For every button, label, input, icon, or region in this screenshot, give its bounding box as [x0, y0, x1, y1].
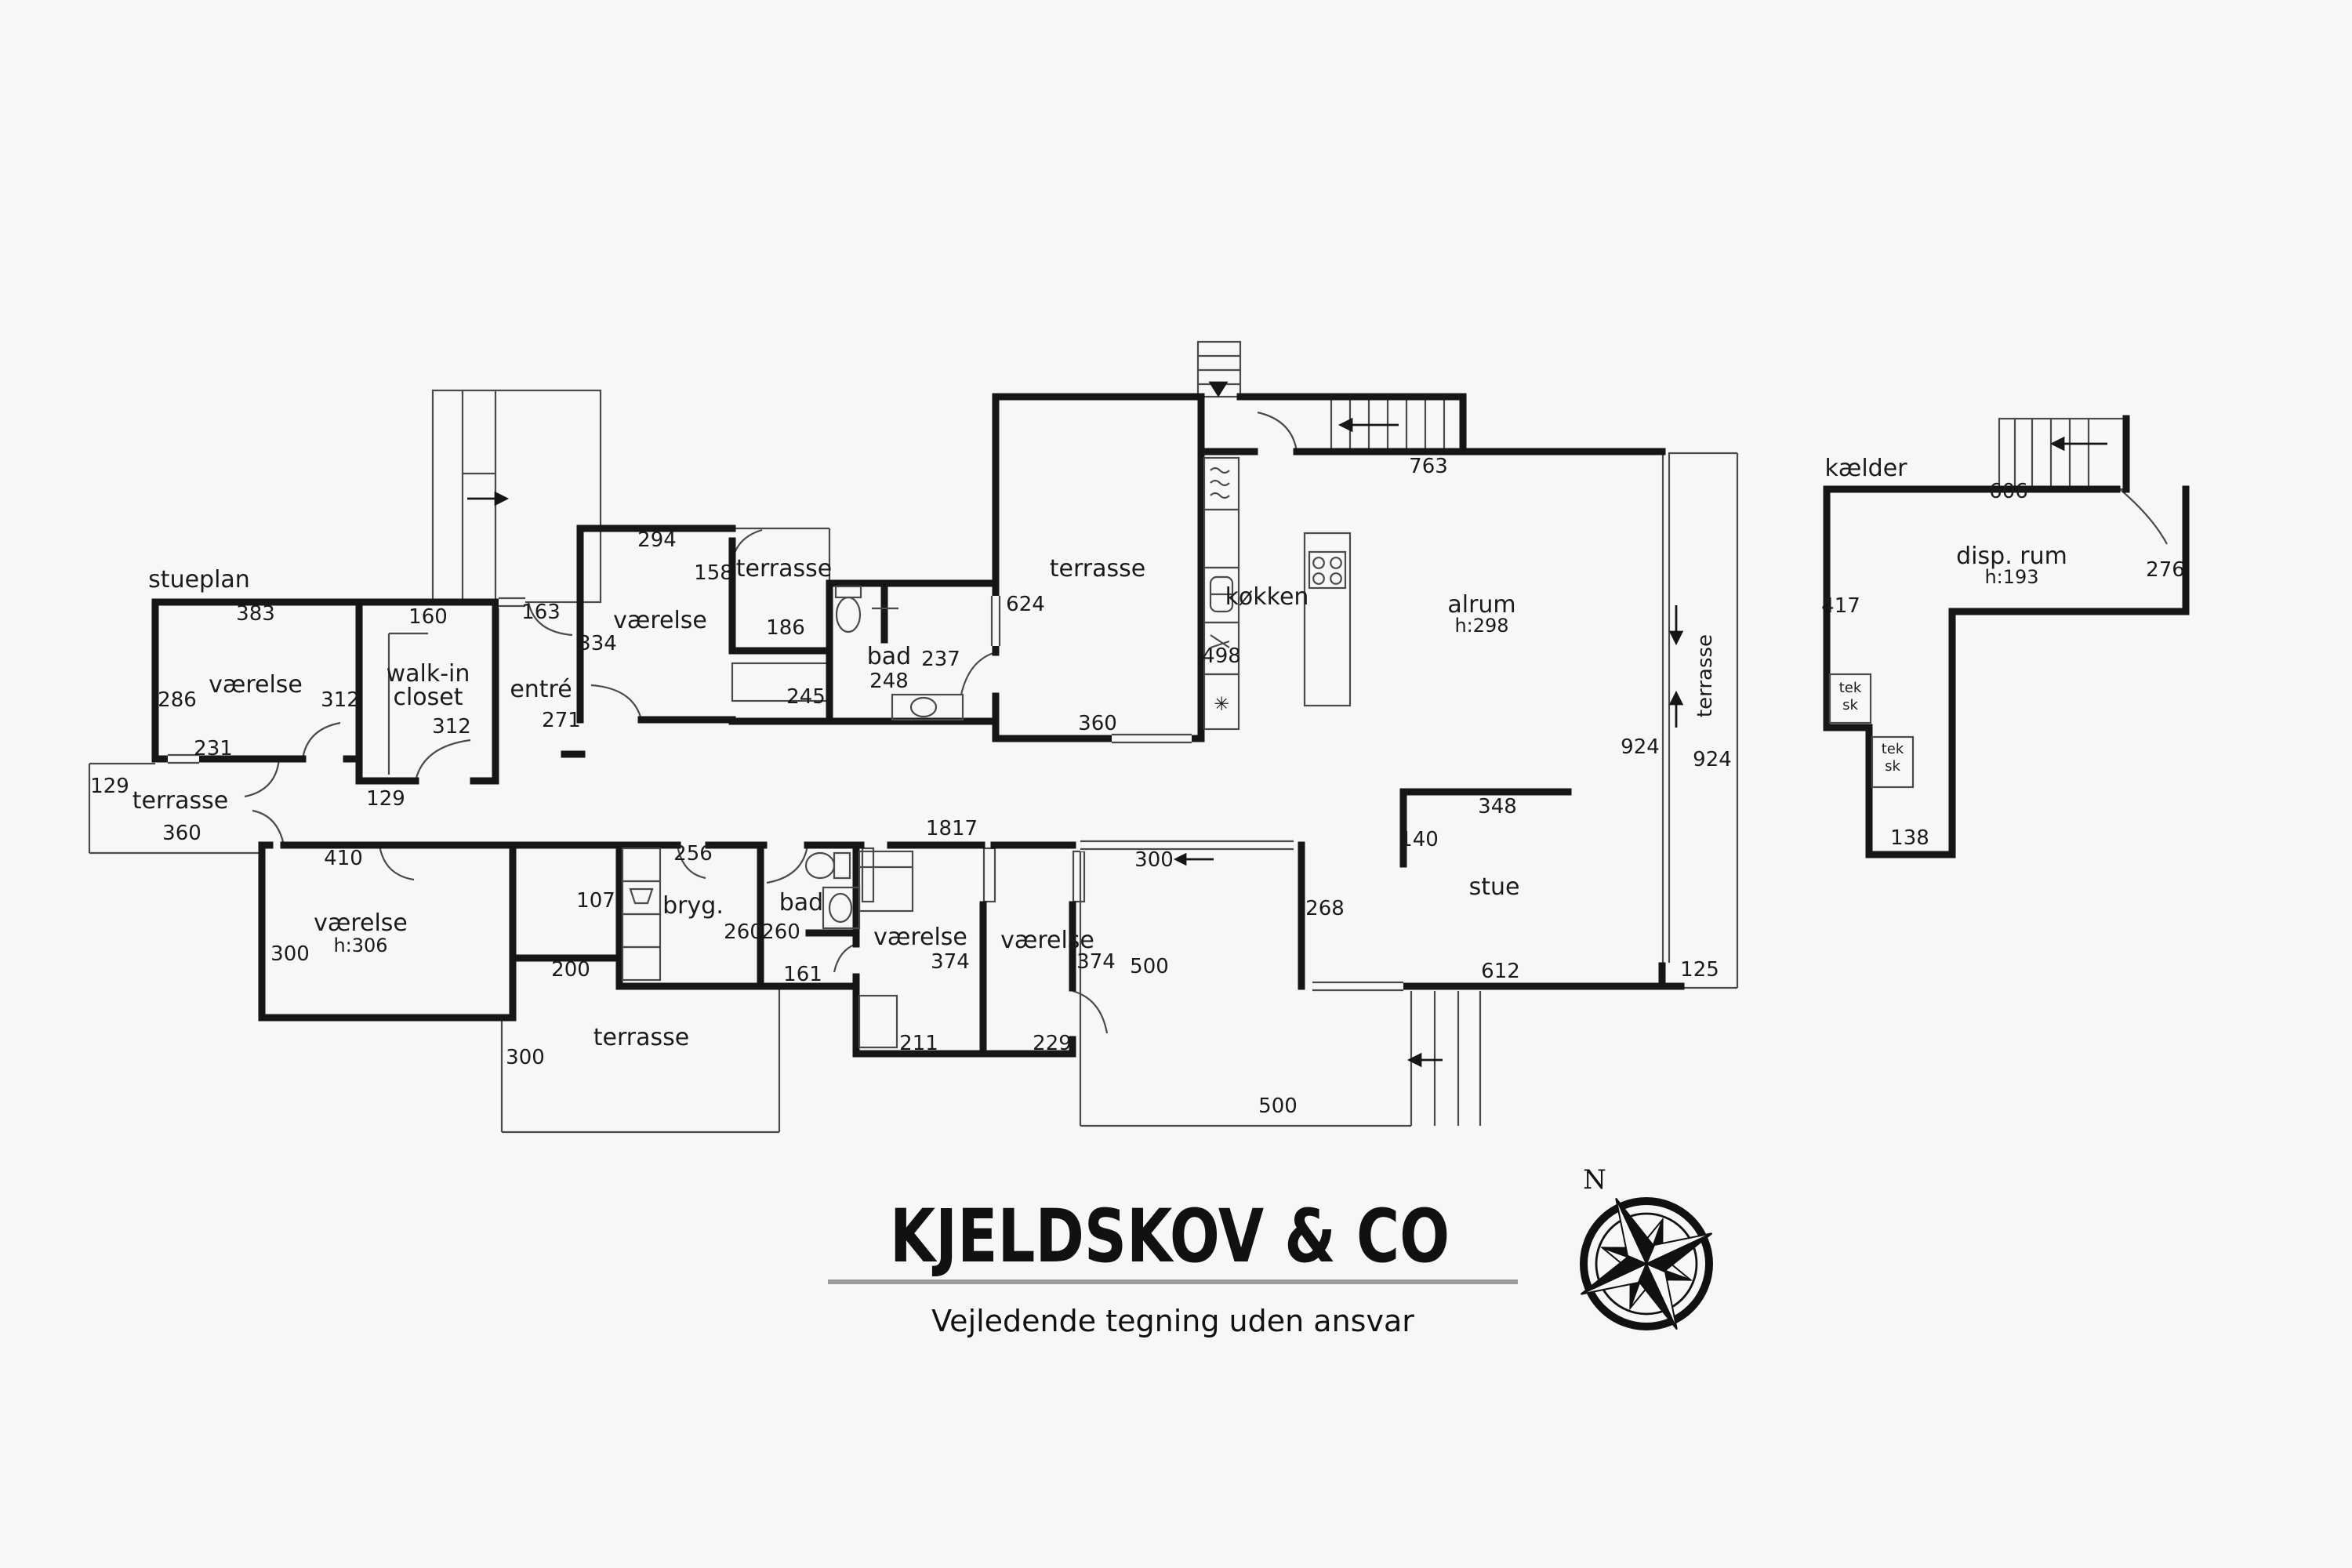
dimension-229: 229	[1033, 1034, 1072, 1054]
room-vaerelse-s2-label: værelse	[1000, 929, 1094, 953]
floorplan-canvas: KJELDSKOV & CO Vejledende tegning uden a…	[0, 0, 2352, 1568]
dimension-160: 160	[408, 608, 448, 628]
compass-icon	[1581, 1199, 1712, 1330]
walkin-line2-label: closet	[393, 686, 463, 710]
terrasse-east-label: terrasse	[1696, 634, 1716, 717]
room-vaerelse-sw-label: værelse	[314, 912, 408, 935]
dimension-294: 294	[637, 531, 677, 551]
dimension-260: 260	[724, 923, 763, 943]
dimension-138: 138	[1890, 829, 1929, 849]
dimension-200: 200	[551, 960, 590, 981]
room-vaerelse-334-label: værelse	[613, 609, 707, 633]
dimension-158: 158	[694, 564, 733, 584]
dimension-383: 383	[236, 604, 275, 625]
floorplan-page: KJELDSKOV & CO Vejledende tegning uden a…	[0, 0, 2352, 1568]
entre-label: entré	[510, 678, 572, 702]
alrum-height-label: h:298	[1454, 616, 1508, 635]
tek-sk-1a-label: tek	[1839, 683, 1862, 697]
door-arcs	[245, 412, 2167, 1033]
dimension-286: 286	[158, 691, 197, 711]
dimension-606: 606	[1989, 482, 2028, 503]
dimension-500: 500	[1258, 1097, 1298, 1117]
dimension-417: 417	[1821, 597, 1860, 617]
dimension-624: 624	[1006, 595, 1045, 615]
dimension-211: 211	[899, 1034, 938, 1054]
tek-sk-1b-label: sk	[1842, 700, 1858, 714]
alrum-label: alrum	[1447, 593, 1515, 617]
floor-title-label: stueplan	[148, 568, 250, 592]
bad-north-label: bad	[867, 645, 912, 669]
dimension-260: 260	[761, 923, 800, 943]
carport-outline	[433, 390, 601, 602]
dimension-360: 360	[1078, 714, 1117, 735]
dimension-334: 334	[578, 634, 617, 655]
chimney-arrow	[1210, 383, 1226, 395]
dimension-300: 300	[506, 1048, 545, 1069]
dimension-500: 500	[1130, 957, 1169, 978]
dimension-612: 612	[1481, 962, 1520, 982]
dimension-129: 129	[90, 777, 129, 797]
dimension-348: 348	[1478, 797, 1517, 818]
dimension-107: 107	[576, 891, 615, 912]
dimension-271: 271	[542, 711, 581, 731]
kitchen-island	[1305, 533, 1350, 706]
dimension-245: 245	[786, 688, 826, 708]
kokken-label: køkken	[1225, 586, 1309, 609]
dimension-125: 125	[1680, 960, 1719, 981]
dimension-498: 498	[1202, 647, 1241, 667]
tek-sk-2b-label: sk	[1885, 761, 1900, 775]
dimension-231: 231	[194, 739, 233, 760]
dimension-924: 924	[1621, 738, 1660, 758]
dimension-129: 129	[366, 789, 405, 810]
freezer-symbol-label: ✳	[1214, 695, 1229, 713]
room-vaerelse-s1-label: værelse	[873, 926, 967, 949]
terrasse-south-label: terrasse	[593, 1026, 689, 1050]
dimension-161: 161	[783, 965, 822, 985]
bryg-label: bryg.	[662, 895, 724, 918]
toilet-icon	[836, 586, 861, 597]
disclaimer-text: Vejledende tegning uden ansvar	[931, 1305, 1414, 1339]
terrasse-west-label: terrasse	[132, 789, 228, 813]
kaelder-title-label: kælder	[1825, 457, 1907, 481]
company-logo: KJELDSKOV & CO	[890, 1194, 1450, 1280]
dimension-237: 237	[921, 650, 960, 670]
room-vaerelse-sw-height-label: h:306	[333, 936, 387, 955]
dimension-374: 374	[931, 953, 970, 973]
dimension-140: 140	[1399, 830, 1439, 851]
bad-south-label: bad	[779, 891, 824, 915]
dimension-410: 410	[324, 849, 363, 869]
dimension-248: 248	[869, 672, 909, 692]
dimension-300: 300	[1134, 851, 1174, 871]
dimension-312: 312	[321, 691, 360, 711]
dimension-256: 256	[673, 844, 713, 865]
dimension-360: 360	[162, 824, 201, 844]
dimension-186: 186	[766, 619, 805, 639]
dimension-312: 312	[432, 717, 471, 738]
dimension-268: 268	[1305, 899, 1345, 920]
laundry-unit	[622, 848, 660, 881]
room-vaerelse-nw-label: værelse	[209, 673, 303, 697]
logo-divider	[828, 1279, 1518, 1284]
dimension-374: 374	[1076, 953, 1116, 973]
tek-sk-2a-label: tek	[1882, 744, 1904, 758]
dimension-300: 300	[270, 945, 310, 965]
stue-label: stue	[1469, 876, 1520, 899]
toilet-icon-south	[834, 853, 850, 878]
terrasse-small-label: terrasse	[736, 557, 832, 581]
dimension-276: 276	[2146, 561, 2185, 581]
disp-rum-label: disp. rum	[1956, 545, 2067, 568]
terrasse-mid-label: terrasse	[1050, 557, 1145, 581]
compass-north-label: N	[1583, 1165, 1606, 1196]
dimension-1817: 1817	[926, 819, 978, 840]
dimension-163: 163	[521, 603, 561, 623]
dimension-924: 924	[1693, 750, 1732, 771]
dimension-763: 763	[1409, 457, 1448, 477]
disp-rum-height-label: h:193	[1984, 568, 2038, 586]
